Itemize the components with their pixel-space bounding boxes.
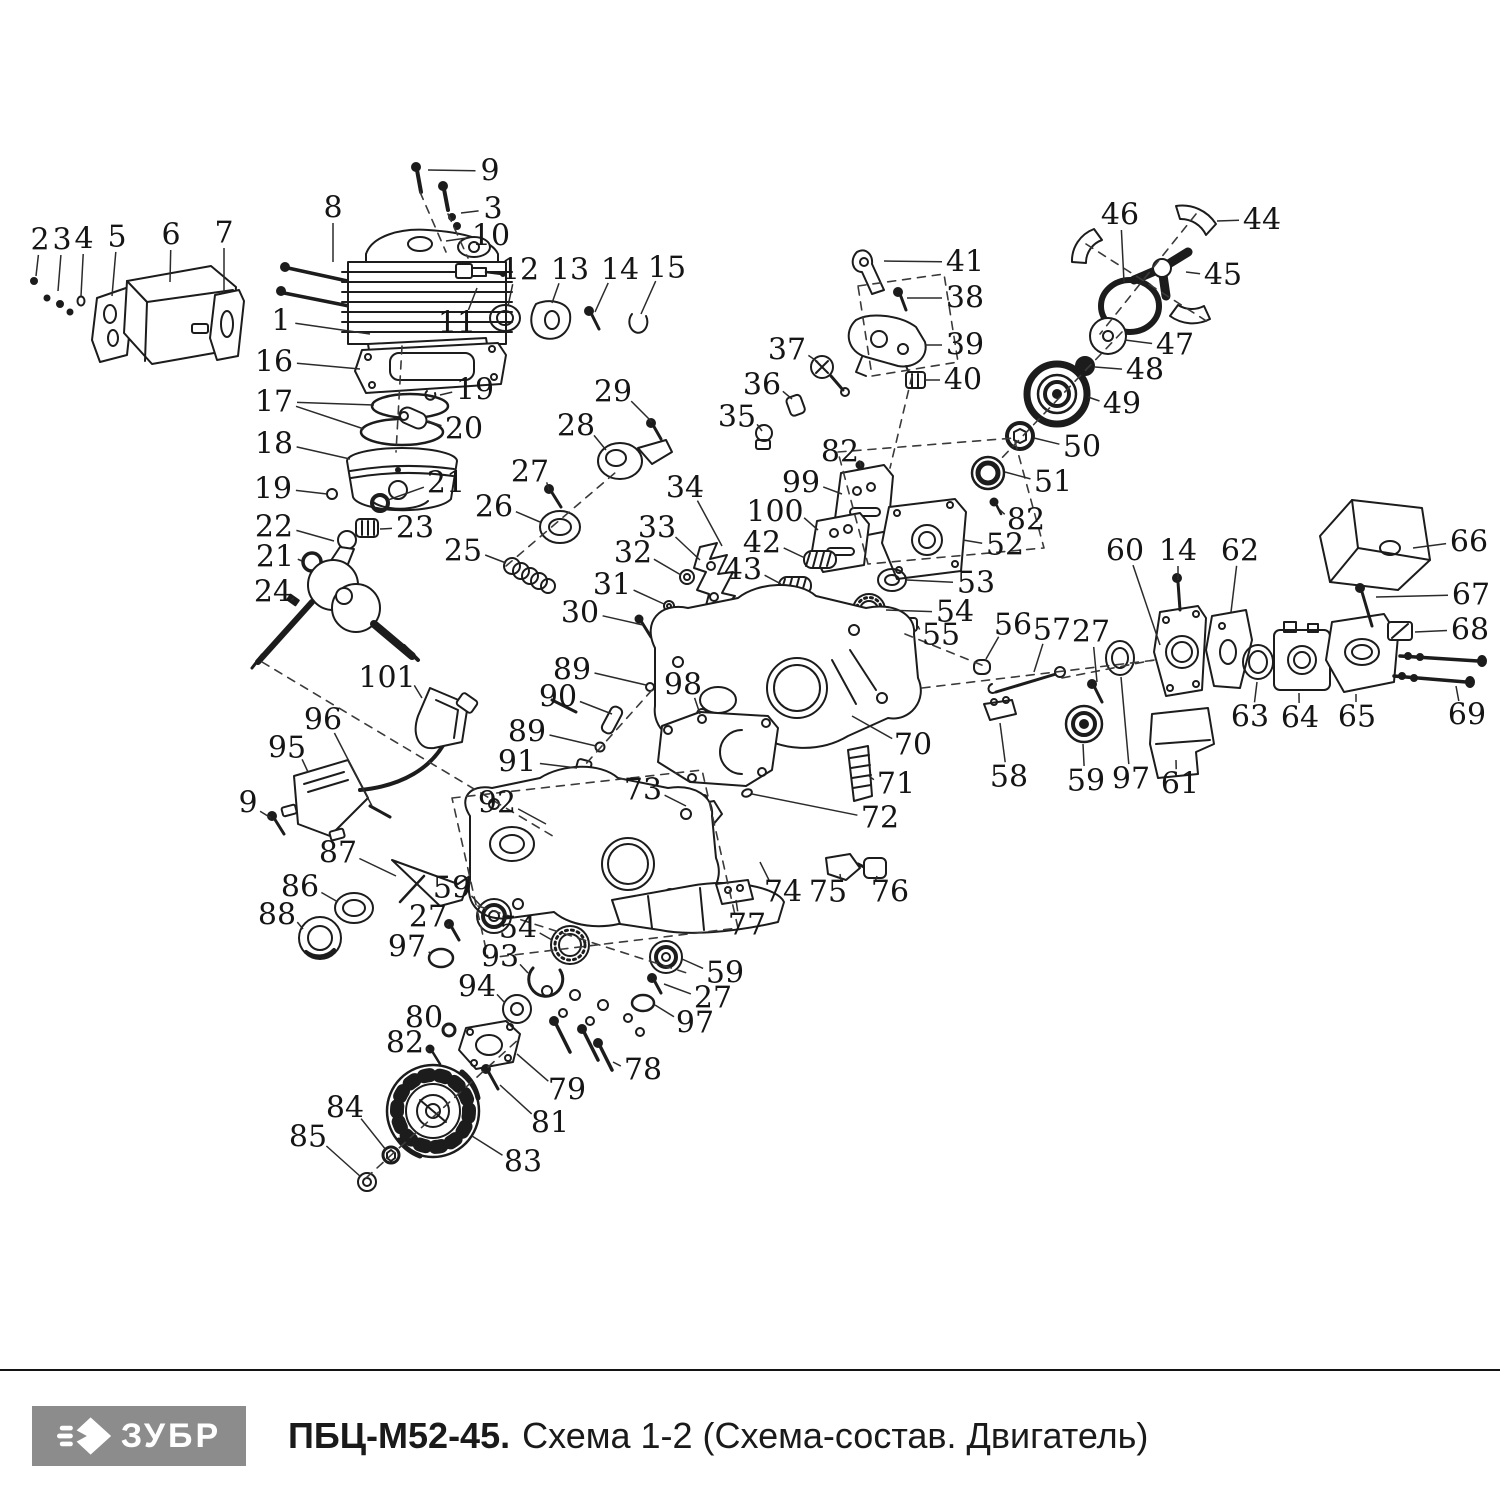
part-label-77: 77 xyxy=(728,908,766,943)
part-label-87: 87 xyxy=(319,836,357,871)
leader-line xyxy=(321,893,338,903)
leader-line xyxy=(444,1025,445,1028)
leader-line xyxy=(682,959,703,968)
leader-line xyxy=(297,447,350,459)
leader-line xyxy=(428,170,476,171)
leader-line xyxy=(361,1119,386,1150)
part-label-27: 27 xyxy=(1072,615,1110,650)
part-label-45: 45 xyxy=(1204,258,1242,293)
part-label-98: 98 xyxy=(664,668,702,703)
part-label-59: 59 xyxy=(1067,764,1105,799)
leader-line xyxy=(580,702,612,715)
part-label-12: 12 xyxy=(501,253,539,288)
part-label-6: 6 xyxy=(161,218,180,253)
part-label-76: 76 xyxy=(871,875,909,910)
part-label-5: 5 xyxy=(107,220,126,255)
part-label-39: 39 xyxy=(946,328,984,363)
leader-line xyxy=(540,764,577,769)
leader-line xyxy=(297,363,360,369)
part-label-44: 44 xyxy=(1243,203,1281,238)
zubr-logo-text: ЗУБР xyxy=(121,1417,221,1456)
leader-line xyxy=(1231,566,1237,612)
leader-line xyxy=(613,1062,621,1066)
part-label-74: 74 xyxy=(764,875,802,910)
part-label-57: 57 xyxy=(1033,613,1071,648)
part-label-13: 13 xyxy=(551,253,589,288)
leader-line xyxy=(595,673,647,685)
leader-line xyxy=(963,540,982,543)
part-label-15: 15 xyxy=(648,251,686,286)
leader-line xyxy=(36,255,38,276)
leader-line xyxy=(485,555,506,563)
leader-line xyxy=(297,402,374,405)
leader-line xyxy=(1000,723,1005,762)
leader-line xyxy=(550,735,597,746)
part-label-14: 14 xyxy=(601,253,639,288)
part-label-50: 50 xyxy=(1063,430,1101,465)
model-code: ПБЦ-М52-45. xyxy=(288,1415,510,1457)
part-label-23: 23 xyxy=(396,511,434,546)
part-label-82: 82 xyxy=(386,1026,424,1061)
leader-line xyxy=(359,859,396,877)
leader-line xyxy=(380,528,392,529)
part-label-58: 58 xyxy=(990,760,1028,795)
leader-line xyxy=(1121,230,1124,282)
part-label-19: 19 xyxy=(254,472,292,507)
leader-line xyxy=(520,964,528,973)
schema-label: Схема 1-2 (Схема-состав. Двигатель) xyxy=(522,1415,1148,1457)
zubr-logo: ЗУБР xyxy=(32,1406,246,1466)
part-label-90: 90 xyxy=(539,680,577,715)
part-label-62: 62 xyxy=(1221,534,1259,569)
part-label-78: 78 xyxy=(624,1053,662,1088)
leader-line xyxy=(170,250,171,282)
part-label-36: 36 xyxy=(743,368,781,403)
part-label-7: 7 xyxy=(214,216,233,251)
part-label-63: 63 xyxy=(1231,700,1269,735)
part-label-21: 21 xyxy=(256,540,294,575)
part-label-71: 71 xyxy=(877,767,915,802)
leader-line xyxy=(296,406,364,429)
footer-title: ПБЦ-М52-45. Схема 1-2 (Схема-состав. Дви… xyxy=(288,1406,1148,1466)
leader-line xyxy=(1133,565,1160,645)
part-label-101: 101 xyxy=(358,661,415,696)
part-label-20: 20 xyxy=(445,412,483,447)
part-label-34: 34 xyxy=(666,471,704,506)
part-label-32: 32 xyxy=(614,536,652,571)
part-label-40: 40 xyxy=(944,363,982,398)
part-label-25: 25 xyxy=(444,534,482,569)
part-label-4: 4 xyxy=(74,222,93,257)
leader-line xyxy=(655,1005,674,1017)
leader-line xyxy=(58,255,61,291)
part-label-97: 97 xyxy=(388,930,426,965)
part-label-68: 68 xyxy=(1451,613,1489,648)
leader-line xyxy=(884,261,942,262)
part-label-9: 9 xyxy=(480,154,499,189)
part-label-9: 9 xyxy=(238,786,257,821)
flywheel-group xyxy=(358,1065,479,1191)
part-label-26: 26 xyxy=(475,490,513,525)
part-label-46: 46 xyxy=(1101,198,1139,233)
part-label-94: 94 xyxy=(458,970,496,1005)
leader-line xyxy=(654,559,681,575)
exploded-diagram-svg: 2345678931011112131415161719201819212223… xyxy=(0,0,1500,1380)
part-label-29: 29 xyxy=(594,375,632,410)
part-label-2: 2 xyxy=(30,223,49,258)
part-label-65: 65 xyxy=(1338,700,1376,735)
leader-line xyxy=(634,590,664,604)
part-label-97: 97 xyxy=(1112,762,1150,797)
part-label-1: 1 xyxy=(271,304,290,339)
part-label-72: 72 xyxy=(861,801,899,836)
leader-line xyxy=(461,211,479,213)
part-label-95: 95 xyxy=(268,731,306,766)
part-label-21: 21 xyxy=(427,466,465,501)
leader-line xyxy=(1125,340,1152,344)
leader-line xyxy=(907,580,953,582)
leader-line xyxy=(497,994,505,1003)
leader-line xyxy=(112,252,116,296)
part-label-82: 82 xyxy=(821,435,859,470)
page: 2345678931011112131415161719201819212223… xyxy=(0,0,1500,1500)
part-label-38: 38 xyxy=(946,281,984,316)
part-label-10: 10 xyxy=(472,219,510,254)
part-label-91: 91 xyxy=(498,745,536,780)
part-label-67: 67 xyxy=(1452,578,1490,613)
part-label-83: 83 xyxy=(504,1145,542,1180)
leader-line xyxy=(1094,647,1097,682)
part-label-61: 61 xyxy=(1161,767,1199,802)
part-label-14: 14 xyxy=(1159,534,1197,569)
part-label-92: 92 xyxy=(478,786,516,821)
part-label-3: 3 xyxy=(52,223,71,258)
leader-line xyxy=(765,575,781,584)
part-label-73: 73 xyxy=(624,773,662,808)
part-label-97: 97 xyxy=(676,1006,714,1041)
part-label-85: 85 xyxy=(289,1120,327,1155)
part-label-75: 75 xyxy=(809,875,847,910)
leader-line xyxy=(1217,220,1239,221)
part-label-52: 52 xyxy=(986,528,1024,563)
leader-line xyxy=(594,435,606,450)
part-label-11: 11 xyxy=(438,306,476,341)
leader-line xyxy=(440,392,452,395)
leader-line xyxy=(81,254,83,296)
leader-line xyxy=(664,984,691,994)
leader-line xyxy=(517,1054,548,1081)
part-label-43: 43 xyxy=(724,553,762,588)
part-label-8: 8 xyxy=(323,191,342,226)
leader-line xyxy=(1005,472,1031,479)
leader-line xyxy=(296,530,334,541)
part-label-49: 49 xyxy=(1103,387,1141,422)
leader-line xyxy=(641,281,656,314)
leader-line xyxy=(326,1146,361,1177)
part-label-56: 56 xyxy=(994,608,1032,643)
leader-line xyxy=(516,512,540,522)
leader-line xyxy=(1034,644,1043,672)
leader-line xyxy=(296,490,327,494)
part-label-55: 55 xyxy=(922,618,960,653)
leader-line xyxy=(540,933,552,940)
part-label-16: 16 xyxy=(255,345,293,380)
leader-line xyxy=(500,1085,532,1114)
part-label-19: 19 xyxy=(456,373,494,408)
part-label-27: 27 xyxy=(511,455,549,490)
leader-line xyxy=(784,548,805,558)
part-label-79: 79 xyxy=(548,1073,586,1108)
leader-line xyxy=(697,501,722,546)
muffler-group xyxy=(31,266,244,364)
leader-line xyxy=(676,537,701,560)
exploded-diagram-area: 2345678931011112131415161719201819212223… xyxy=(0,0,1500,1380)
part-label-88: 88 xyxy=(258,898,296,933)
part-label-100: 100 xyxy=(746,495,803,530)
part-label-28: 28 xyxy=(557,409,595,444)
footer: ЗУБР ПБЦ-М52-45. Схема 1-2 (Схема-состав… xyxy=(0,1371,1500,1500)
leader-line xyxy=(298,559,302,561)
part-label-81: 81 xyxy=(531,1106,569,1141)
part-label-48: 48 xyxy=(1126,353,1164,388)
part-label-66: 66 xyxy=(1450,525,1488,560)
part-label-64: 64 xyxy=(1281,701,1319,736)
leader-line xyxy=(1095,367,1122,369)
part-label-69: 69 xyxy=(1448,698,1486,733)
leader-line xyxy=(1186,272,1200,274)
part-label-70: 70 xyxy=(894,728,932,763)
leader-line xyxy=(1121,677,1129,764)
leader-line xyxy=(631,401,652,422)
leader-line xyxy=(1415,631,1447,633)
part-label-96: 96 xyxy=(304,703,342,738)
leader-line xyxy=(752,794,857,815)
leader-line xyxy=(1376,595,1448,597)
part-label-17: 17 xyxy=(255,385,293,420)
leader-line xyxy=(1034,438,1059,444)
leader-line xyxy=(918,626,920,630)
part-label-24: 24 xyxy=(254,575,292,610)
part-label-60: 60 xyxy=(1106,534,1144,569)
zubr-logo-icon xyxy=(57,1415,113,1457)
leader-line xyxy=(472,1136,503,1155)
part-label-41: 41 xyxy=(946,245,984,280)
part-label-35: 35 xyxy=(718,400,756,435)
part-label-84: 84 xyxy=(326,1091,364,1126)
part-label-37: 37 xyxy=(768,333,806,368)
part-label-18: 18 xyxy=(255,427,293,462)
part-label-30: 30 xyxy=(561,596,599,631)
part-label-51: 51 xyxy=(1034,465,1072,500)
